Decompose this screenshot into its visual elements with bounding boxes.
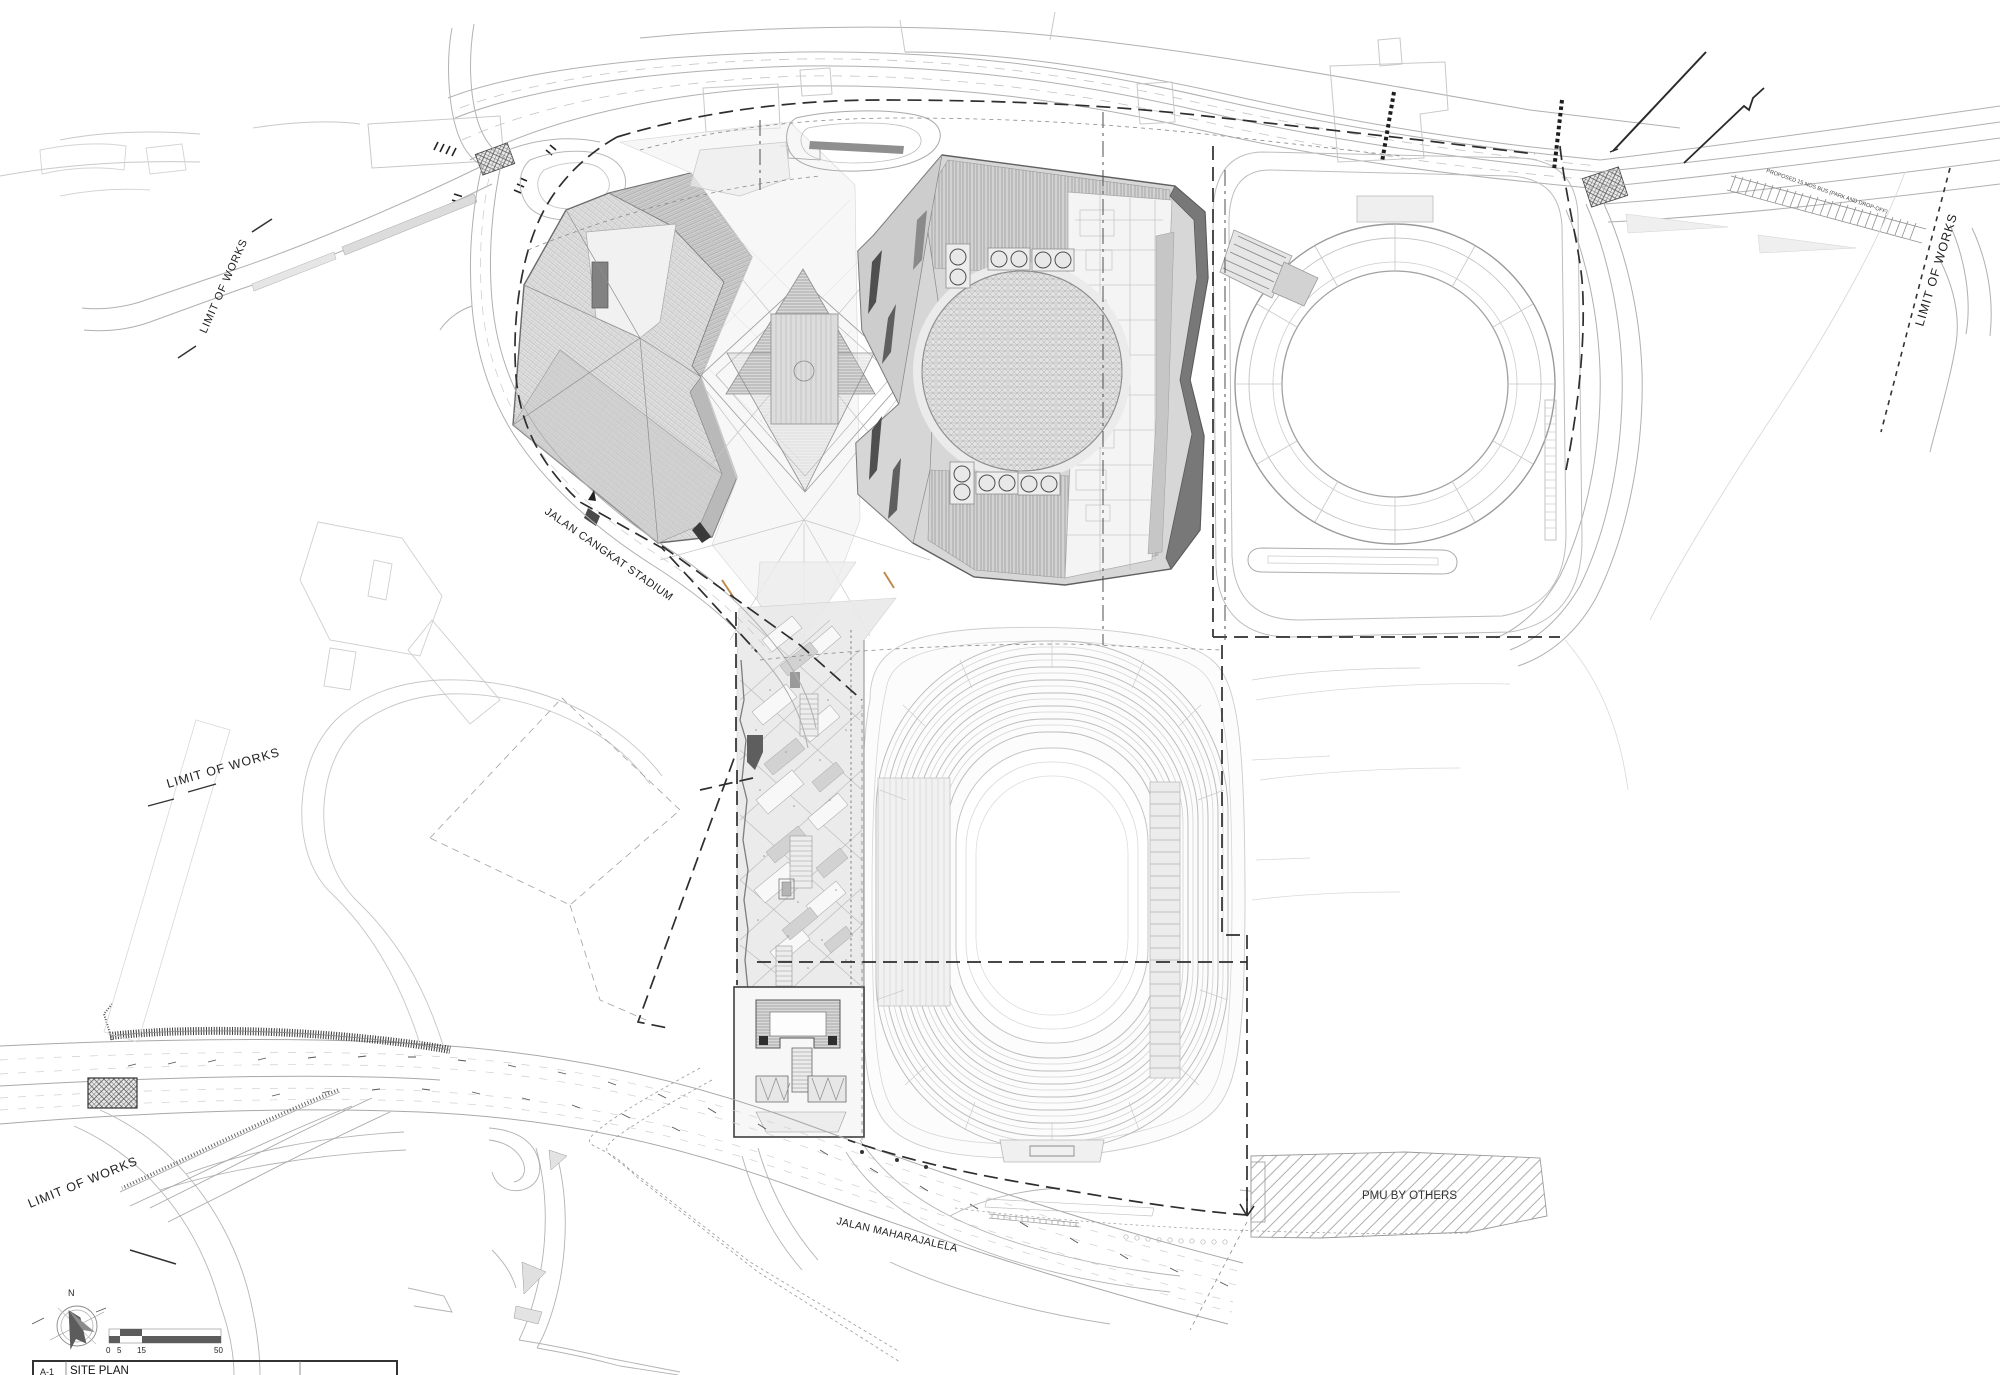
svg-text:0: 0 (106, 1346, 111, 1355)
svg-text:PMU BY OTHERS: PMU BY OTHERS (1362, 1190, 1457, 1202)
svg-text:15: 15 (137, 1346, 146, 1355)
svg-text:50: 50 (214, 1346, 223, 1355)
svg-text:N: N (68, 1288, 75, 1298)
svg-text:SITE PLAN: SITE PLAN (70, 1365, 129, 1375)
svg-text:A-1: A-1 (40, 1367, 54, 1375)
svg-text:5: 5 (117, 1346, 122, 1355)
